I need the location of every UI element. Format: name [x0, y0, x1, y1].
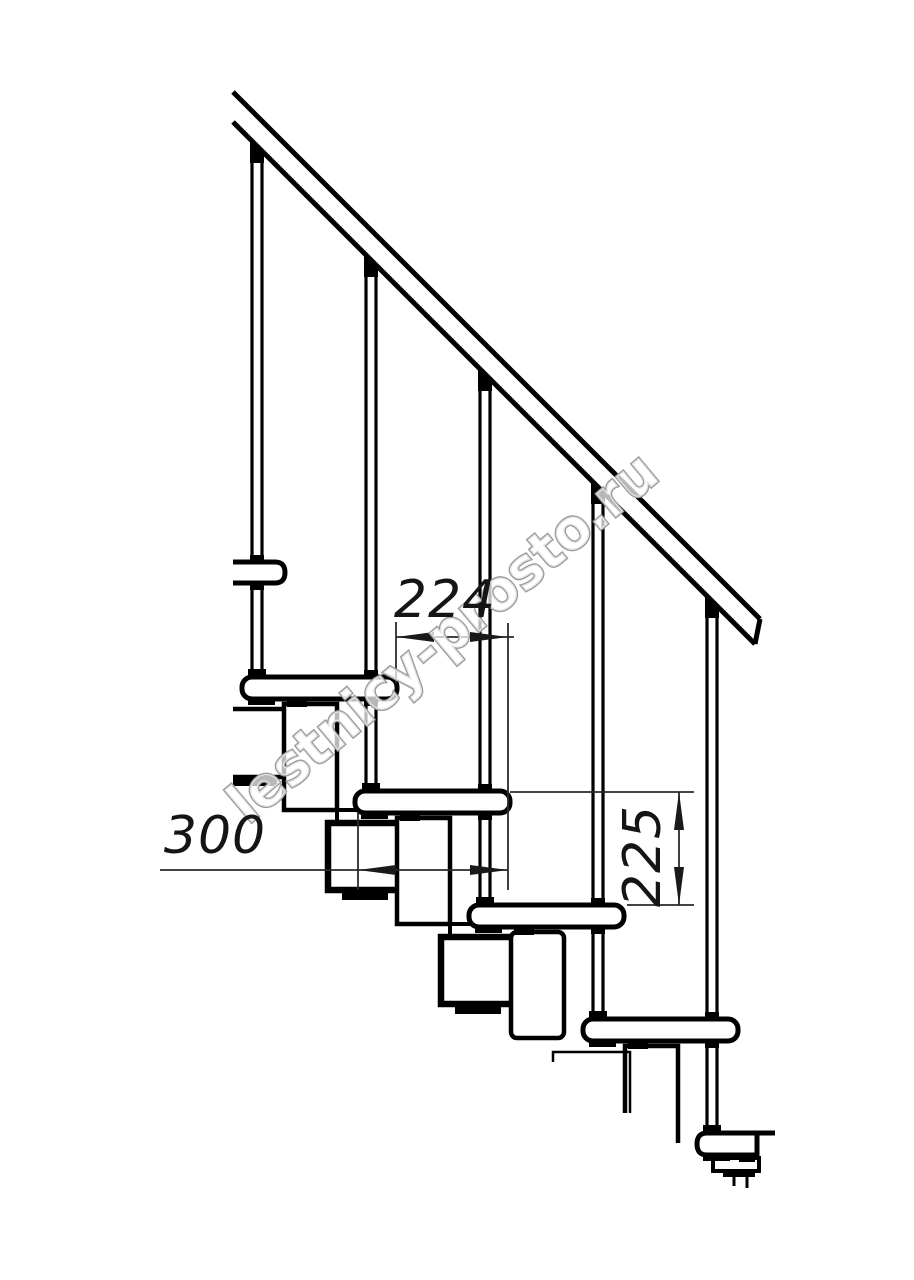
technical-drawing-page: lestnicy-prosto.ru 224 300 225: [0, 0, 914, 1280]
baluster-5: [707, 613, 717, 1133]
baluster-4: [593, 499, 603, 1019]
baluster-1: [252, 158, 262, 677]
step-5-partial: [697, 1133, 775, 1155]
step-4: [583, 1019, 738, 1041]
dimension-label-300: 300: [164, 806, 266, 866]
steps: [233, 562, 775, 1155]
arrow-down: [674, 867, 684, 905]
arrow-up: [674, 792, 684, 830]
dimension-label-225: 225: [613, 805, 673, 907]
staircase-drawing: lestnicy-prosto.ru 224 300 225: [0, 0, 914, 1280]
baluster-rail-caps: [250, 142, 719, 618]
step-3: [469, 905, 624, 927]
module-chain-5: [713, 1158, 759, 1188]
partial-upper-step: [233, 562, 285, 583]
module-chain-4: [625, 1046, 678, 1143]
step-2: [355, 791, 510, 813]
dimension-label-224: 224: [394, 570, 496, 630]
handrail-end-cut: [755, 619, 760, 644]
